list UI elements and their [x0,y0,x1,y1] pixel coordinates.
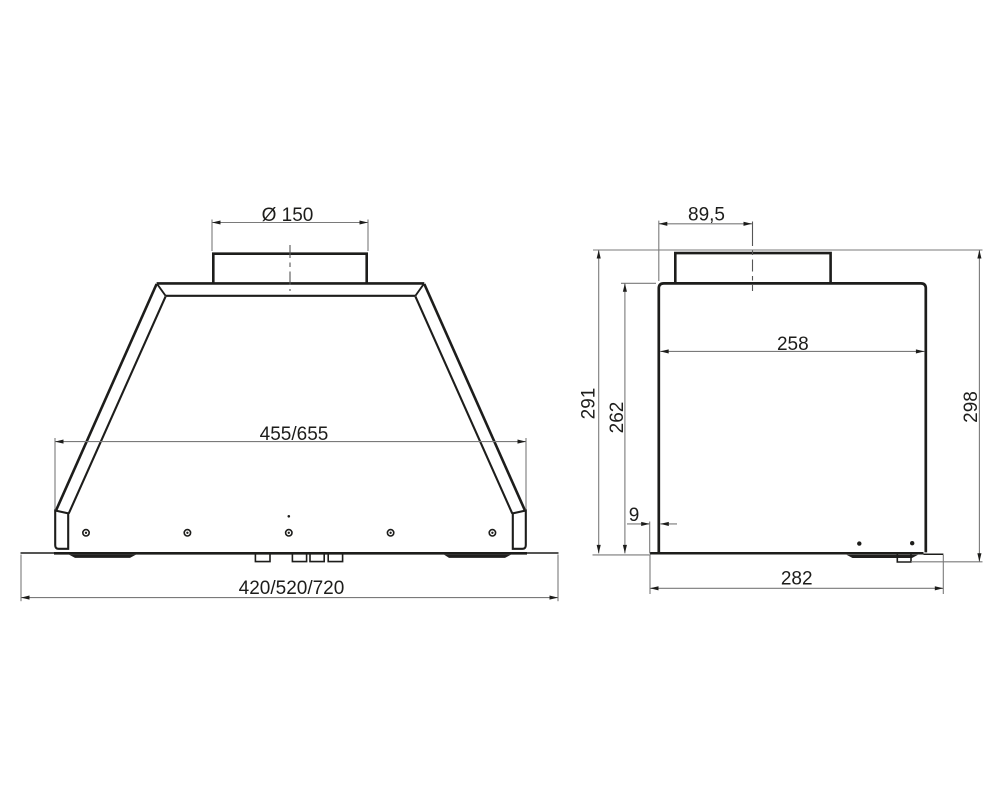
svg-text:282: 282 [781,568,813,589]
svg-text:455/655: 455/655 [260,424,329,445]
svg-text:291: 291 [579,388,600,420]
svg-text:262: 262 [607,402,628,434]
svg-text:89,5: 89,5 [688,204,725,225]
svg-text:9: 9 [629,505,640,526]
svg-text:298: 298 [961,391,982,423]
svg-text:Ø 150: Ø 150 [262,205,314,226]
svg-text:258: 258 [777,334,809,355]
svg-text:420/520/720: 420/520/720 [239,578,345,599]
